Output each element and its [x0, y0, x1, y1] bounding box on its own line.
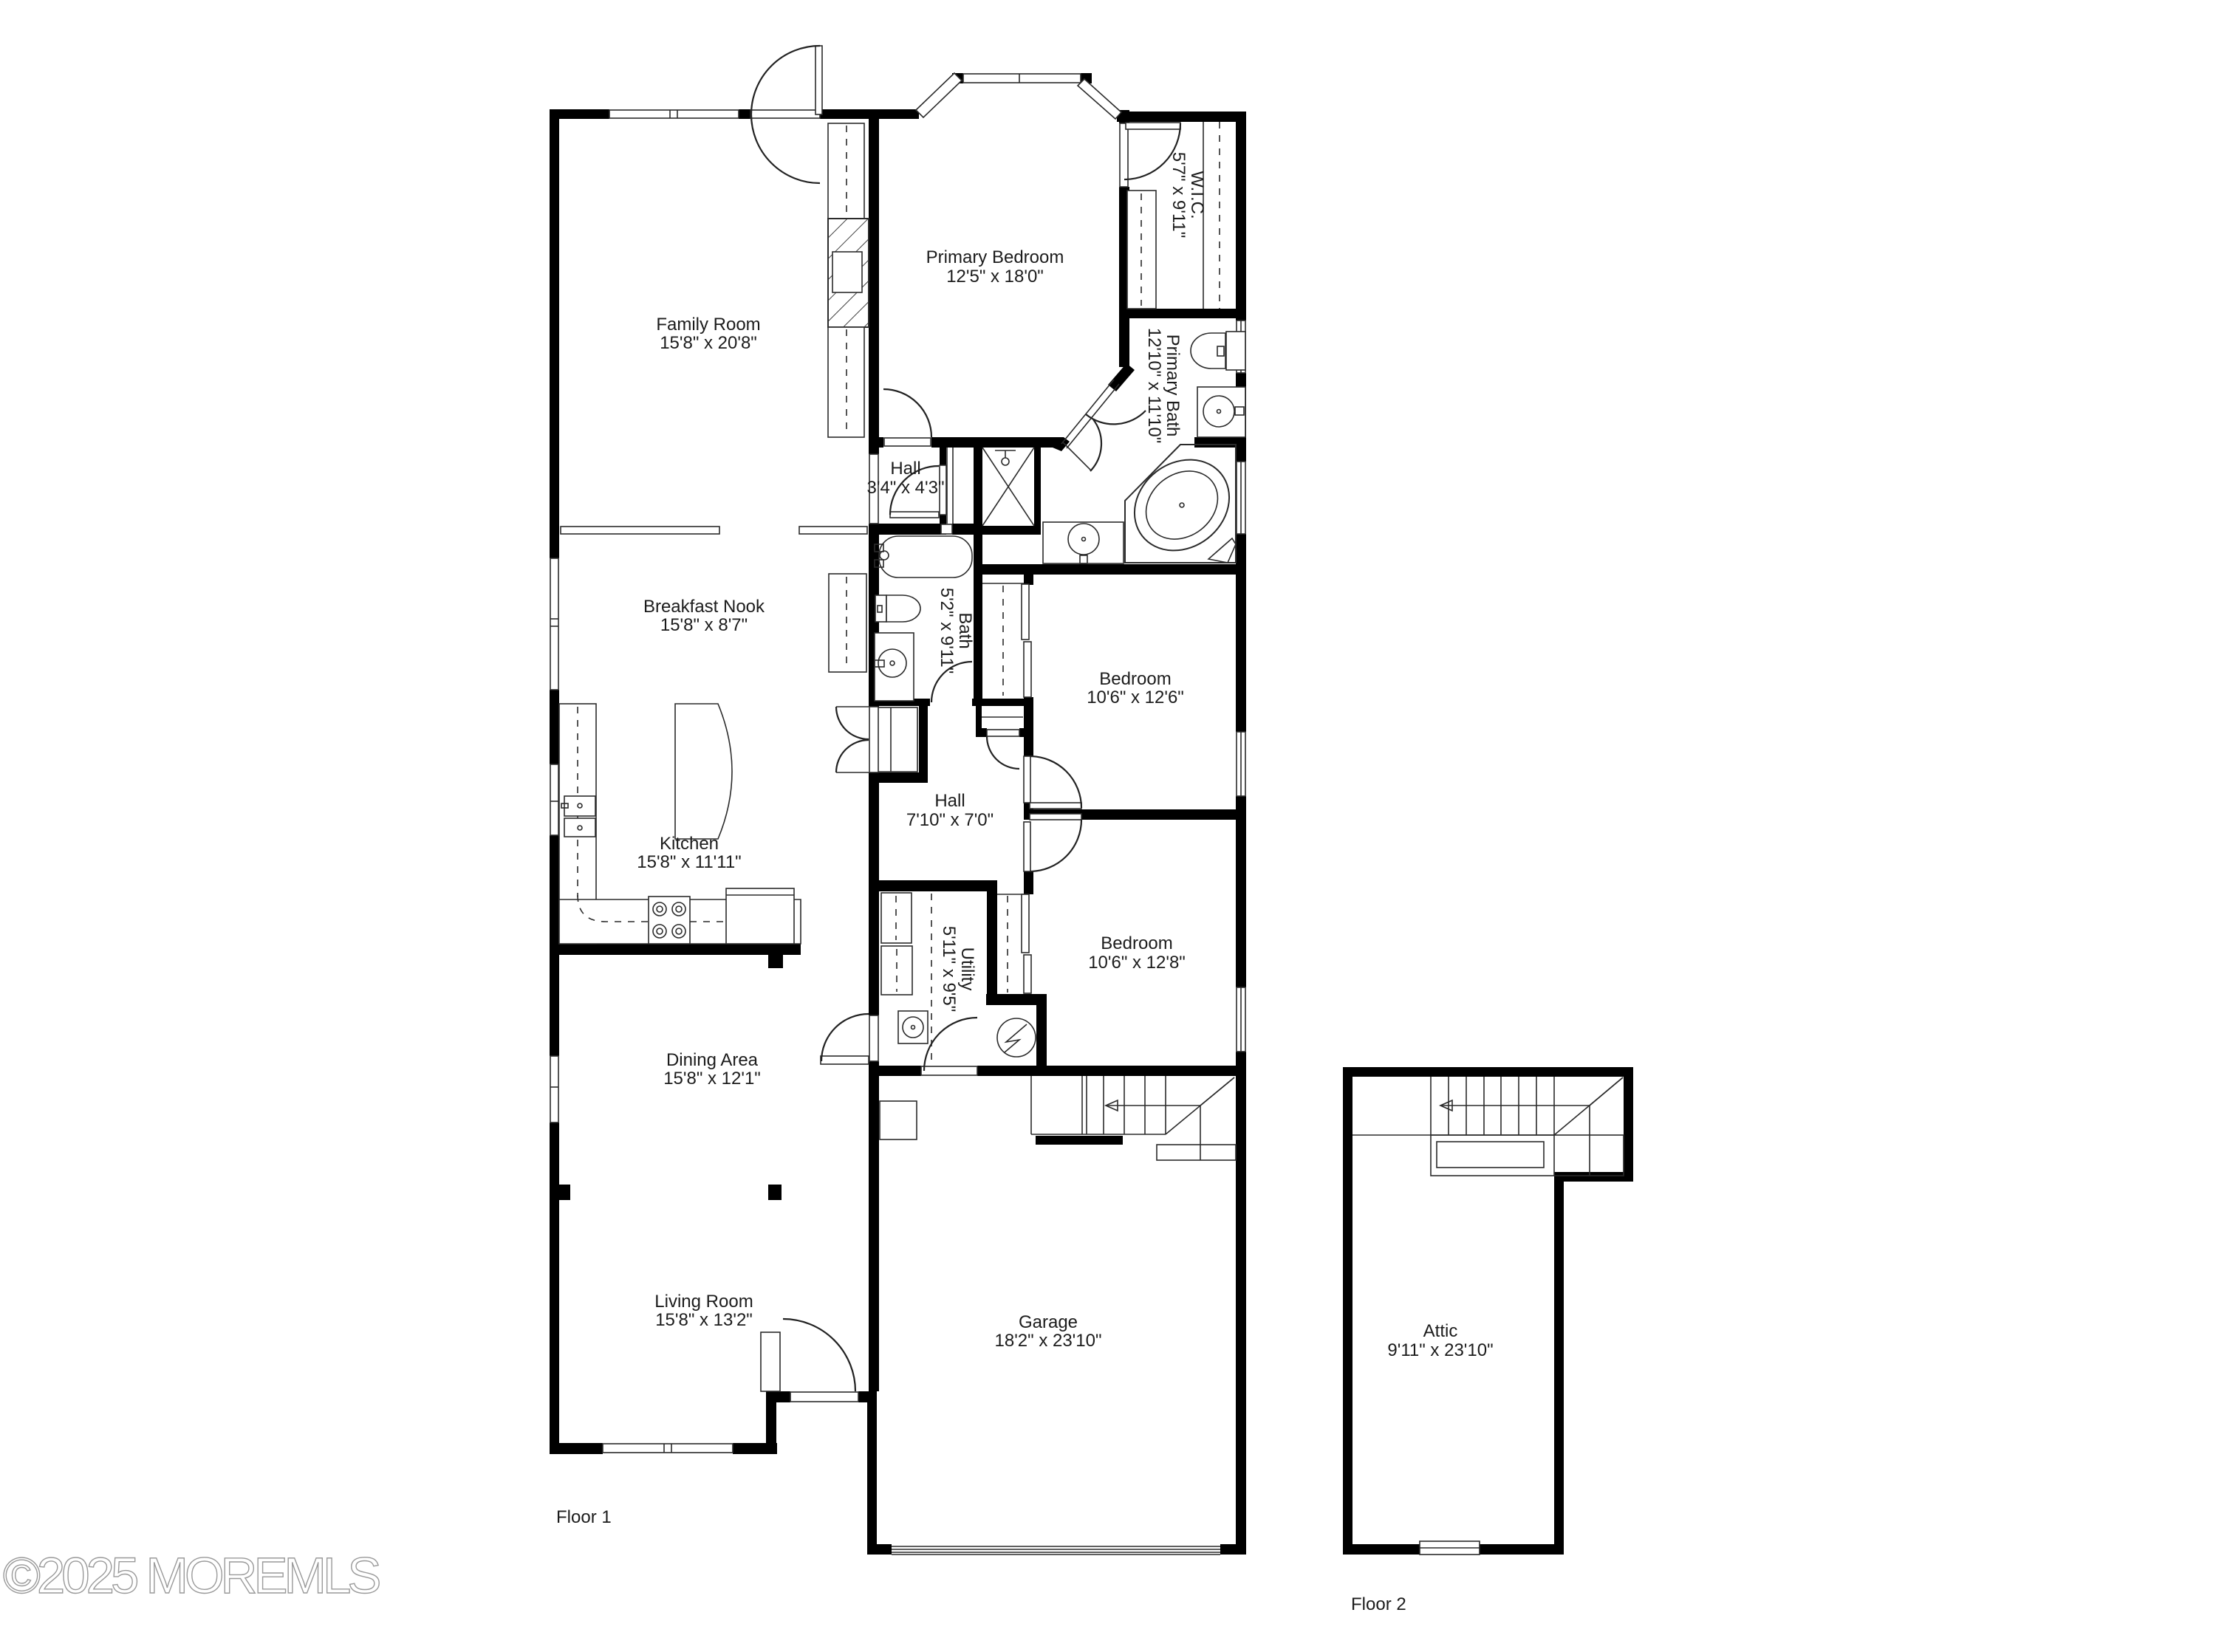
svg-text:15'8" x 11'11": 15'8" x 11'11" — [637, 852, 741, 872]
svg-text:Family Room: Family Room — [656, 315, 760, 335]
svg-text:12'5" x 18'0": 12'5" x 18'0" — [946, 267, 1044, 287]
svg-text:Hall: Hall — [934, 791, 965, 811]
svg-text:W.I.C.: W.I.C. — [1187, 171, 1207, 219]
svg-text:15'8" x 8'7": 15'8" x 8'7" — [660, 615, 748, 635]
svg-text:Primary Bath: Primary Bath — [1163, 335, 1183, 437]
svg-text:15'8" x 20'8": 15'8" x 20'8" — [660, 333, 757, 353]
svg-text:Living Room: Living Room — [654, 1292, 753, 1312]
svg-text:9'11" x 23'10": 9'11" x 23'10" — [1387, 1340, 1493, 1360]
svg-text:Bath: Bath — [955, 612, 975, 648]
svg-text:Garage: Garage — [1019, 1312, 1078, 1332]
svg-text:5'7" x 9'11": 5'7" x 9'11" — [1169, 152, 1189, 239]
svg-text:Utility: Utility — [957, 947, 977, 991]
svg-text:18'2" x 23'10": 18'2" x 23'10" — [995, 1331, 1102, 1351]
svg-text:Primary Bedroom: Primary Bedroom — [926, 247, 1064, 267]
svg-text:Kitchen: Kitchen — [660, 834, 719, 854]
svg-text:Attic: Attic — [1423, 1321, 1458, 1341]
svg-text:©2025 MOREMLS: ©2025 MOREMLS — [3, 1547, 379, 1604]
svg-text:3'4" x 4'3": 3'4" x 4'3" — [867, 478, 945, 498]
svg-text:Hall: Hall — [890, 459, 920, 479]
svg-text:Floor 1: Floor 1 — [556, 1507, 612, 1527]
svg-text:Bedroom: Bedroom — [1099, 669, 1171, 689]
svg-text:5'2" x 9'11": 5'2" x 9'11" — [937, 588, 957, 674]
svg-text:15'8" x 13'2": 15'8" x 13'2" — [655, 1310, 753, 1330]
svg-text:Bedroom: Bedroom — [1101, 933, 1172, 953]
svg-text:10'6" x 12'8": 10'6" x 12'8" — [1088, 953, 1186, 973]
svg-text:Floor 2: Floor 2 — [1351, 1594, 1406, 1614]
svg-text:Breakfast Nook: Breakfast Nook — [643, 597, 765, 617]
svg-text:12'10" x 11'10": 12'10" x 11'10" — [1144, 328, 1164, 444]
svg-text:7'10" x 7'0": 7'10" x 7'0" — [906, 810, 994, 830]
svg-text:Dining Area: Dining Area — [666, 1050, 759, 1070]
svg-text:10'6" x 12'6": 10'6" x 12'6" — [1087, 688, 1184, 707]
svg-text:5'11" x 9'5": 5'11" x 9'5" — [939, 926, 959, 1012]
svg-text:15'8" x 12'1": 15'8" x 12'1" — [663, 1069, 761, 1089]
